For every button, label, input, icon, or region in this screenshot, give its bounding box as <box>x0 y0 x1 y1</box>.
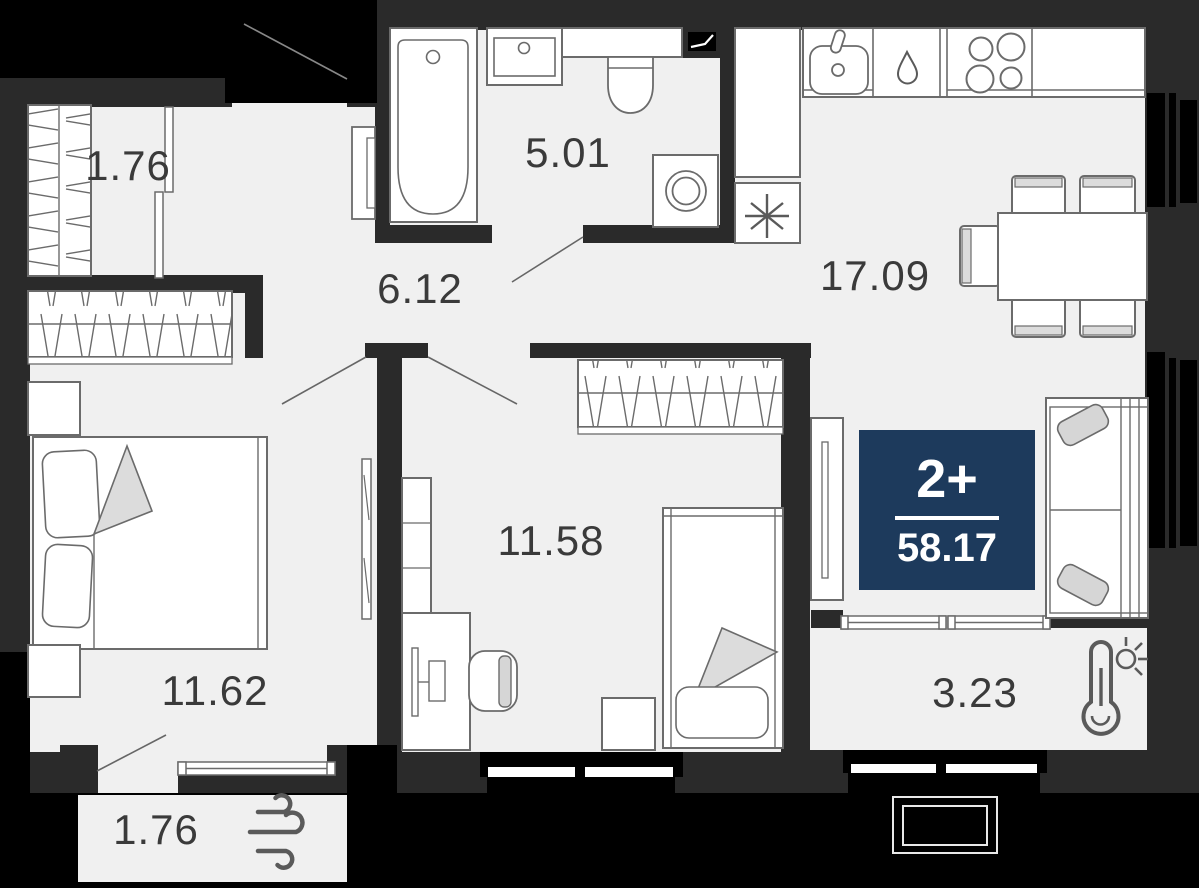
wardrobe-closet <box>28 105 91 276</box>
wall-mirror <box>362 459 371 619</box>
pillow <box>42 544 93 628</box>
bathroom-sink <box>487 28 562 85</box>
tall-shelf <box>402 478 431 613</box>
nightstand <box>28 645 80 697</box>
dining-chair <box>1080 297 1135 337</box>
unit-total-area: 58.17 <box>897 528 997 568</box>
dining-chair <box>960 226 1000 286</box>
room-label-balcony-bottom: 1.76 <box>113 806 199 854</box>
wardrobe-hallway <box>28 291 232 364</box>
washing-machine <box>653 155 718 227</box>
office-chair <box>469 651 517 711</box>
sofa <box>1046 398 1148 618</box>
single-bed <box>663 508 783 748</box>
room-label-balcony-warm: 3.23 <box>932 669 1018 717</box>
room-label-closet: 1.76 <box>85 142 171 190</box>
cabinet-living <box>811 418 843 600</box>
monitor <box>412 648 418 716</box>
vent-shaft-icon <box>688 32 716 51</box>
window-living-balcony <box>841 616 1050 629</box>
nightstand <box>602 698 655 750</box>
dining-chair <box>1012 297 1065 337</box>
room-label-bedroom-small: 11.58 <box>498 517 605 565</box>
bathtub <box>390 28 477 222</box>
dining-chair <box>1080 176 1135 216</box>
pillow <box>676 687 768 738</box>
desk <box>402 613 470 750</box>
window-bedroom-balcony <box>178 762 335 775</box>
badge-divider <box>895 516 999 520</box>
room-label-bedroom-large: 11.62 <box>162 667 269 715</box>
unit-badge: 2+ 58.17 <box>859 430 1035 590</box>
room-label-bathroom: 5.01 <box>525 129 611 177</box>
room-label-hallway: 6.12 <box>377 265 463 313</box>
dining-table <box>998 213 1147 300</box>
hall-cabinet <box>352 127 375 219</box>
nightstand <box>28 382 80 435</box>
dining-chair <box>1012 176 1065 216</box>
wardrobe-bedroom-small <box>578 360 783 434</box>
floor-plan: 1.76 5.01 6.12 17.09 11.58 11.62 3.23 1.… <box>0 0 1199 888</box>
unit-rooms-count: 2+ <box>916 452 978 506</box>
double-bed <box>33 437 267 649</box>
monitor-stand <box>429 661 445 701</box>
pillow <box>42 450 100 539</box>
bathroom-counter <box>562 28 682 57</box>
room-label-kitchen-living: 17.09 <box>820 252 930 300</box>
toilet <box>608 57 653 113</box>
